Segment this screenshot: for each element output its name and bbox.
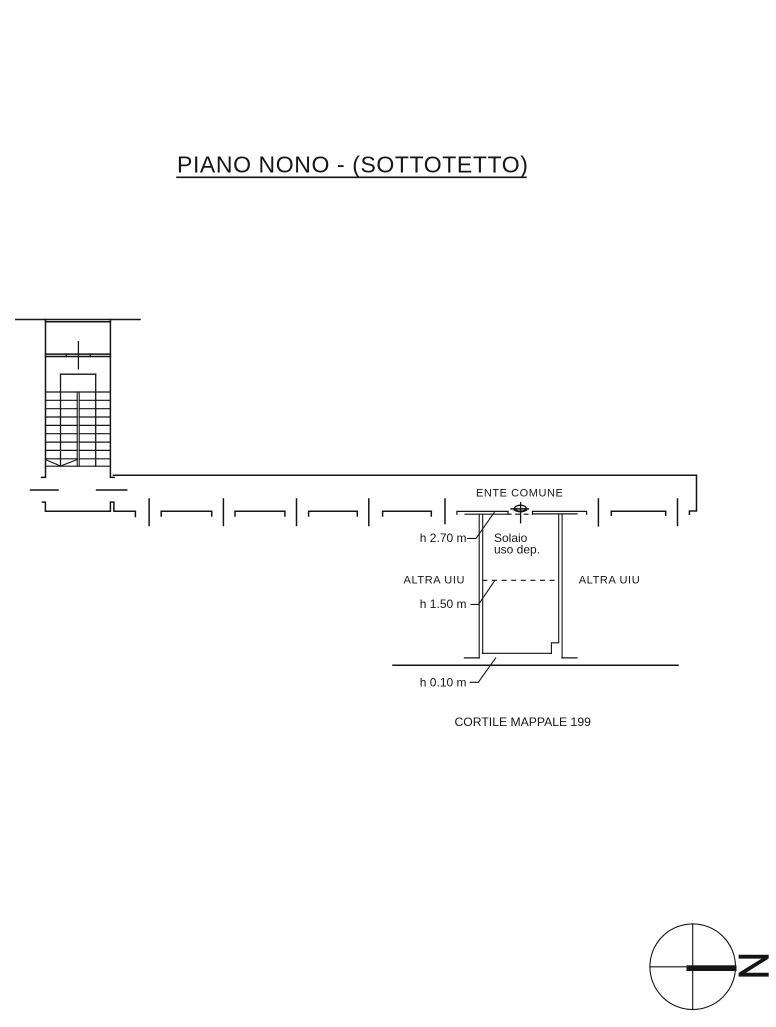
svg-text:uso dep.: uso dep. (494, 543, 540, 557)
svg-text:h 0.10 m: h 0.10 m (420, 676, 467, 690)
svg-text:CORTILE MAPPALE 199: CORTILE MAPPALE 199 (455, 715, 592, 729)
svg-text:h 2.70 m: h 2.70 m (420, 531, 467, 545)
svg-text:ALTRA UIU: ALTRA UIU (579, 574, 641, 586)
svg-text:ENTE COMUNE: ENTE COMUNE (476, 488, 563, 500)
svg-text:h 1.50 m: h 1.50 m (420, 597, 467, 611)
svg-text:PIANO NONO - (SOTTOTETTO): PIANO NONO - (SOTTOTETTO) (177, 151, 529, 177)
svg-text:ALTRA UIU: ALTRA UIU (404, 574, 466, 586)
